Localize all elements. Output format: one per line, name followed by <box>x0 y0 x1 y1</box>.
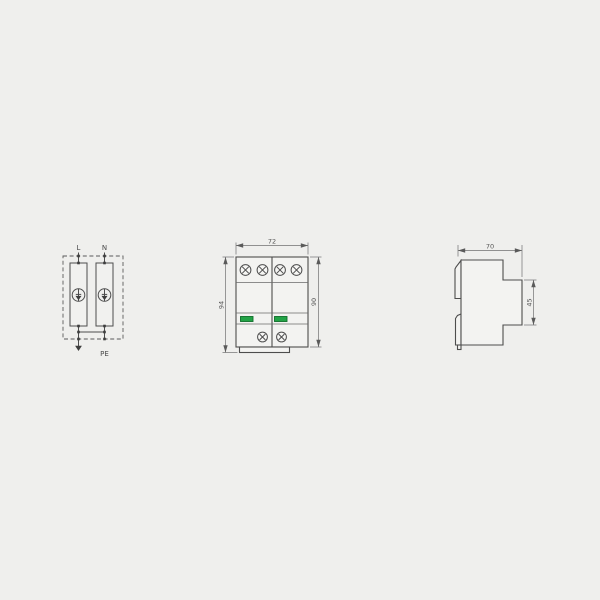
terminal-screw-icon <box>240 265 251 276</box>
junction-dot <box>77 325 80 328</box>
junction-dot <box>103 325 106 328</box>
junction-dot <box>103 262 106 265</box>
status-indicator-window-1 <box>241 317 254 322</box>
technical-drawing-page: L N PE <box>0 0 600 600</box>
terminal-screw-icon <box>258 332 268 342</box>
surge-arrester-icon <box>72 289 85 302</box>
dimension-label-width: 72 <box>268 238 276 246</box>
junction-dot <box>77 338 80 341</box>
dimension-label-body-height: 90 <box>310 298 318 306</box>
terminal-label-pe: PE <box>100 350 109 358</box>
terminal-screw-icon <box>275 265 286 276</box>
din-clip-tab-bottom <box>456 314 462 345</box>
dimension-label-total-height: 94 <box>218 301 226 309</box>
drawing-canvas: L N PE <box>0 0 600 600</box>
junction-dot <box>103 255 106 258</box>
terminal-screw-icon <box>257 265 268 276</box>
terminal-screw-icon <box>291 265 302 276</box>
surge-arrester-icon <box>98 289 111 302</box>
terminal-screw-icon <box>277 332 287 342</box>
junction-dot <box>77 262 80 265</box>
terminal-label-n: N <box>102 244 107 252</box>
dimension-label-front-height: 45 <box>526 298 534 306</box>
junction-dot <box>77 255 80 258</box>
junction-dot <box>103 338 106 341</box>
junction-dot <box>103 331 106 334</box>
din-base <box>240 347 290 353</box>
dimension-label-depth: 70 <box>486 243 494 251</box>
terminal-label-l: L <box>77 244 81 252</box>
status-indicator-window-2 <box>275 317 288 322</box>
junction-dot <box>77 331 80 334</box>
din-clip-foot <box>458 345 462 350</box>
